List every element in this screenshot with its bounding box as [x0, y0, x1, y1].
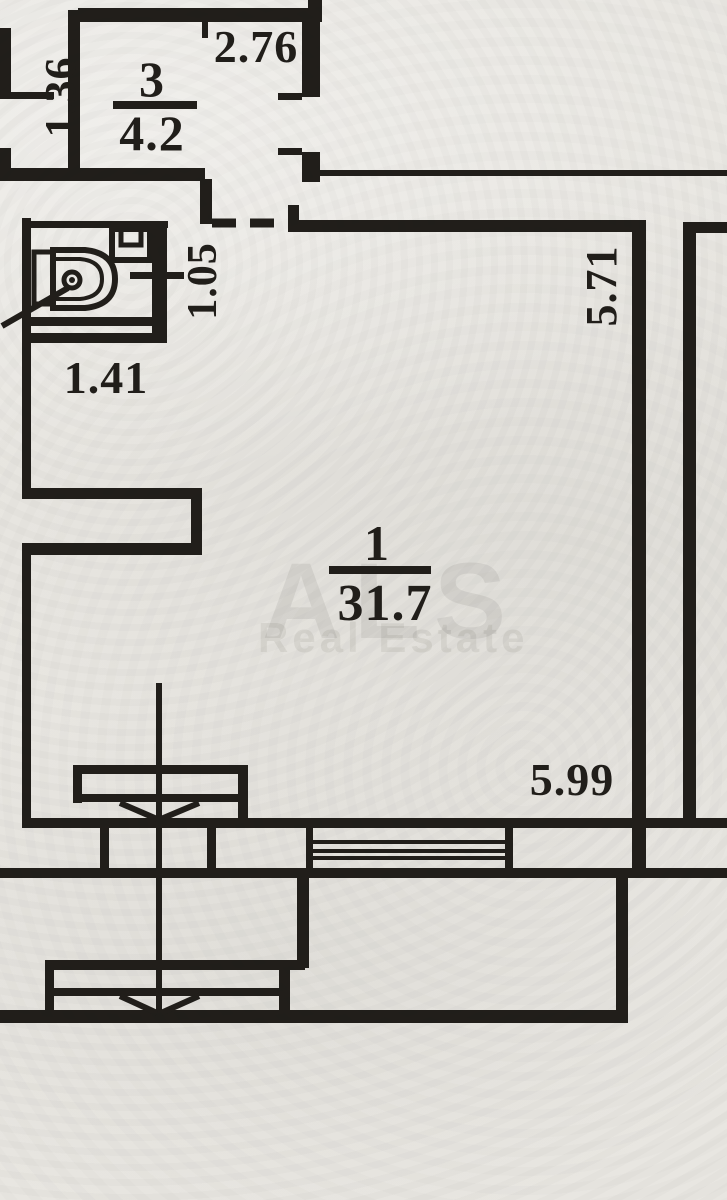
stair-edge	[279, 968, 290, 1017]
toilet-icon	[2, 250, 115, 326]
wall-segment	[0, 168, 205, 181]
stair-edge	[45, 960, 54, 1017]
stair-edge	[73, 765, 248, 774]
wall-segment	[288, 220, 645, 232]
dim-hall-width: 1.41	[64, 352, 149, 403]
dim-room3-width: 2.76	[214, 21, 299, 72]
floor-plan-drawing: ALS Real Estate	[0, 0, 727, 1200]
window-line	[310, 856, 506, 860]
wall-segment	[683, 222, 727, 233]
sink-icon	[112, 229, 150, 260]
window-jamb	[505, 826, 513, 871]
door-jamb-tick	[278, 148, 302, 155]
sink-inner	[121, 229, 141, 245]
stair-arrow	[161, 803, 199, 819]
wall-segment	[22, 555, 31, 818]
fraction-bar	[329, 566, 431, 574]
window-jamb	[306, 826, 313, 871]
thin-wall-line	[305, 170, 727, 176]
toilet-drain-dot	[69, 277, 75, 283]
wall-segment	[302, 152, 320, 182]
wall-segment	[302, 22, 320, 97]
wall-segment	[22, 543, 202, 555]
wall-segment	[207, 822, 216, 872]
dimension-tick	[130, 272, 184, 279]
room3-area: 4.2	[119, 105, 185, 161]
stair-edge	[45, 960, 305, 970]
wall-segment	[22, 218, 31, 490]
walls	[0, 0, 727, 1023]
staircase	[45, 683, 305, 1017]
dimension-tick	[202, 22, 208, 38]
door-jamb-tick	[278, 93, 302, 100]
window-line	[310, 840, 506, 844]
wall-segment	[22, 488, 202, 499]
room1-number: 1	[364, 515, 390, 571]
stair-edge	[238, 765, 248, 823]
wall-segment	[683, 222, 696, 822]
wall-segment	[78, 8, 322, 22]
wall-segment	[0, 28, 11, 96]
room1-area: 31.7	[338, 575, 433, 632]
window-symbol	[306, 826, 513, 871]
wall-segment	[22, 818, 727, 828]
bathroom-wall	[25, 333, 166, 343]
stair-edge	[53, 988, 283, 996]
dim-bathroom-depth: 1.05	[180, 242, 226, 320]
dim-shaft-width: 1.36	[36, 57, 85, 138]
wall-segment	[297, 872, 309, 968]
wall-segment	[616, 878, 628, 1016]
room3-number: 3	[139, 51, 165, 107]
labels: 3 4.2 1 31.7 2.76 1.41 5.99 1.36 1.05 5.…	[36, 21, 626, 805]
wall-segment	[308, 0, 322, 22]
stair-edge	[73, 794, 248, 802]
window-line	[310, 849, 506, 853]
wall-segment	[0, 868, 727, 878]
floor-plan-photo: ALS Real Estate	[0, 0, 727, 1200]
stair-arrow	[120, 803, 157, 819]
bathroom-wall	[152, 221, 167, 343]
wall-segment	[200, 179, 212, 224]
wall-segment	[0, 1010, 628, 1023]
wall-segment	[632, 220, 646, 878]
dim-room1-width: 5.99	[530, 754, 615, 805]
wall-segment	[100, 822, 109, 872]
bathroom-wall	[25, 317, 152, 326]
dim-room1-depth: 5.71	[577, 246, 626, 327]
